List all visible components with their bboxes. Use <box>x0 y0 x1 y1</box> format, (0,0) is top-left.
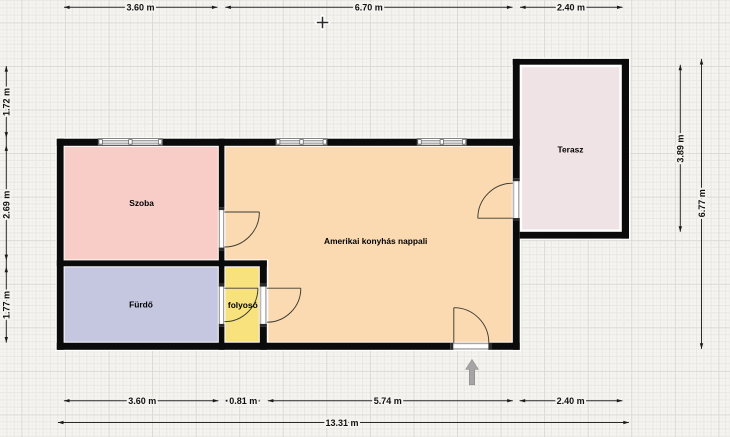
svg-text:folyosó: folyosó <box>228 300 258 310</box>
svg-text:1.77 m: 1.77 m <box>2 291 12 319</box>
svg-text:3.89 m: 3.89 m <box>676 135 686 163</box>
svg-text:3.60 m: 3.60 m <box>128 396 156 406</box>
svg-text:1.72 m: 1.72 m <box>2 88 12 116</box>
svg-text:Amerikai konyhás nappali: Amerikai konyhás nappali <box>324 236 427 246</box>
svg-text:6.77 m: 6.77 m <box>697 189 707 217</box>
svg-text:2.40 m: 2.40 m <box>557 396 585 406</box>
svg-text:5.74 m: 5.74 m <box>374 396 402 406</box>
svg-text:Szoba: Szoba <box>129 198 154 208</box>
svg-text:0.81 m: 0.81 m <box>229 396 257 406</box>
svg-text:3.60 m: 3.60 m <box>126 3 154 13</box>
svg-text:13.31 m: 13.31 m <box>325 418 358 428</box>
svg-text:Terasz: Terasz <box>558 145 584 155</box>
svg-text:2.40 m: 2.40 m <box>557 3 585 13</box>
svg-text:Fürdő: Fürdő <box>129 300 153 310</box>
svg-text:6.70 m: 6.70 m <box>355 3 383 13</box>
svg-text:2.69 m: 2.69 m <box>2 191 12 219</box>
